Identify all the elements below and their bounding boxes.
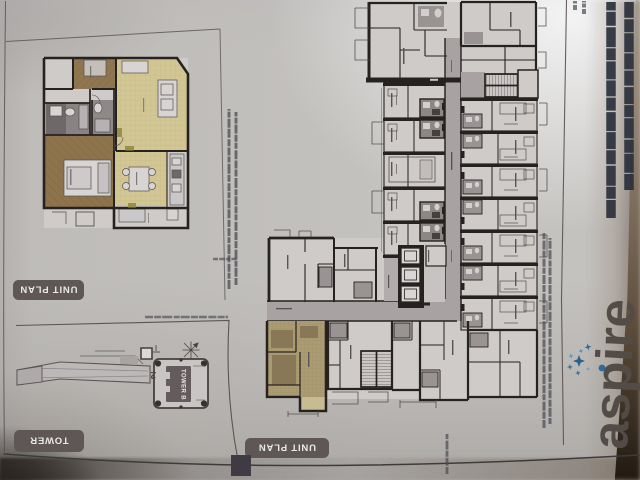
- svg-text:aspire: aspire: [581, 298, 640, 451]
- svg-text:TOWER: TOWER: [29, 435, 68, 446]
- svg-text:TOWER B: TOWER B: [180, 369, 186, 400]
- svg-text:UNIT PLAN: UNIT PLAN: [20, 284, 78, 295]
- svg-text:UNIT PLAN: UNIT PLAN: [258, 442, 316, 453]
- svg-text:2: 2: [150, 369, 156, 380]
